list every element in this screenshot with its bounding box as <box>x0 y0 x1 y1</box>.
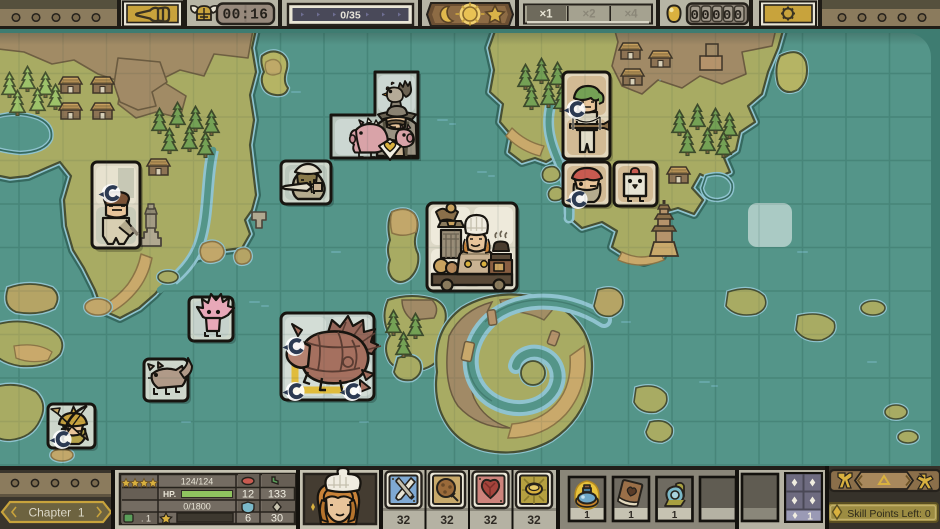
svg-text:Chapter 1: Chapter 1 <box>28 506 84 520</box>
svg-text:00:16: 00:16 <box>222 8 268 24</box>
svg-text:32: 32 <box>527 513 541 527</box>
svg-text:0/35: 0/35 <box>340 10 361 22</box>
svg-text:HP.: HP. <box>163 489 176 499</box>
svg-text:×2: ×2 <box>582 9 595 21</box>
svg-text:6: 6 <box>245 513 251 525</box>
svg-text:1: 1 <box>628 510 634 521</box>
svg-text:12: 12 <box>242 489 254 501</box>
svg-text:32: 32 <box>397 513 411 527</box>
svg-text:1: 1 <box>807 512 813 523</box>
svg-text:0/1800: 0/1800 <box>183 502 211 512</box>
svg-text:Skill Points Left: 0: Skill Points Left: 0 <box>847 508 931 520</box>
svg-text:00000: 00000 <box>690 8 744 24</box>
svg-text:133: 133 <box>268 489 286 501</box>
svg-text:124/124: 124/124 <box>181 477 214 487</box>
svg-text:30: 30 <box>271 513 283 525</box>
svg-text:×1: ×1 <box>539 9 553 21</box>
svg-text:1: 1 <box>672 510 678 521</box>
svg-text:×4: ×4 <box>624 9 638 21</box>
svg-text:. 1: . 1 <box>141 514 151 524</box>
svg-text:32: 32 <box>484 513 498 527</box>
svg-text:1: 1 <box>584 510 590 521</box>
svg-text:32: 32 <box>440 513 454 527</box>
